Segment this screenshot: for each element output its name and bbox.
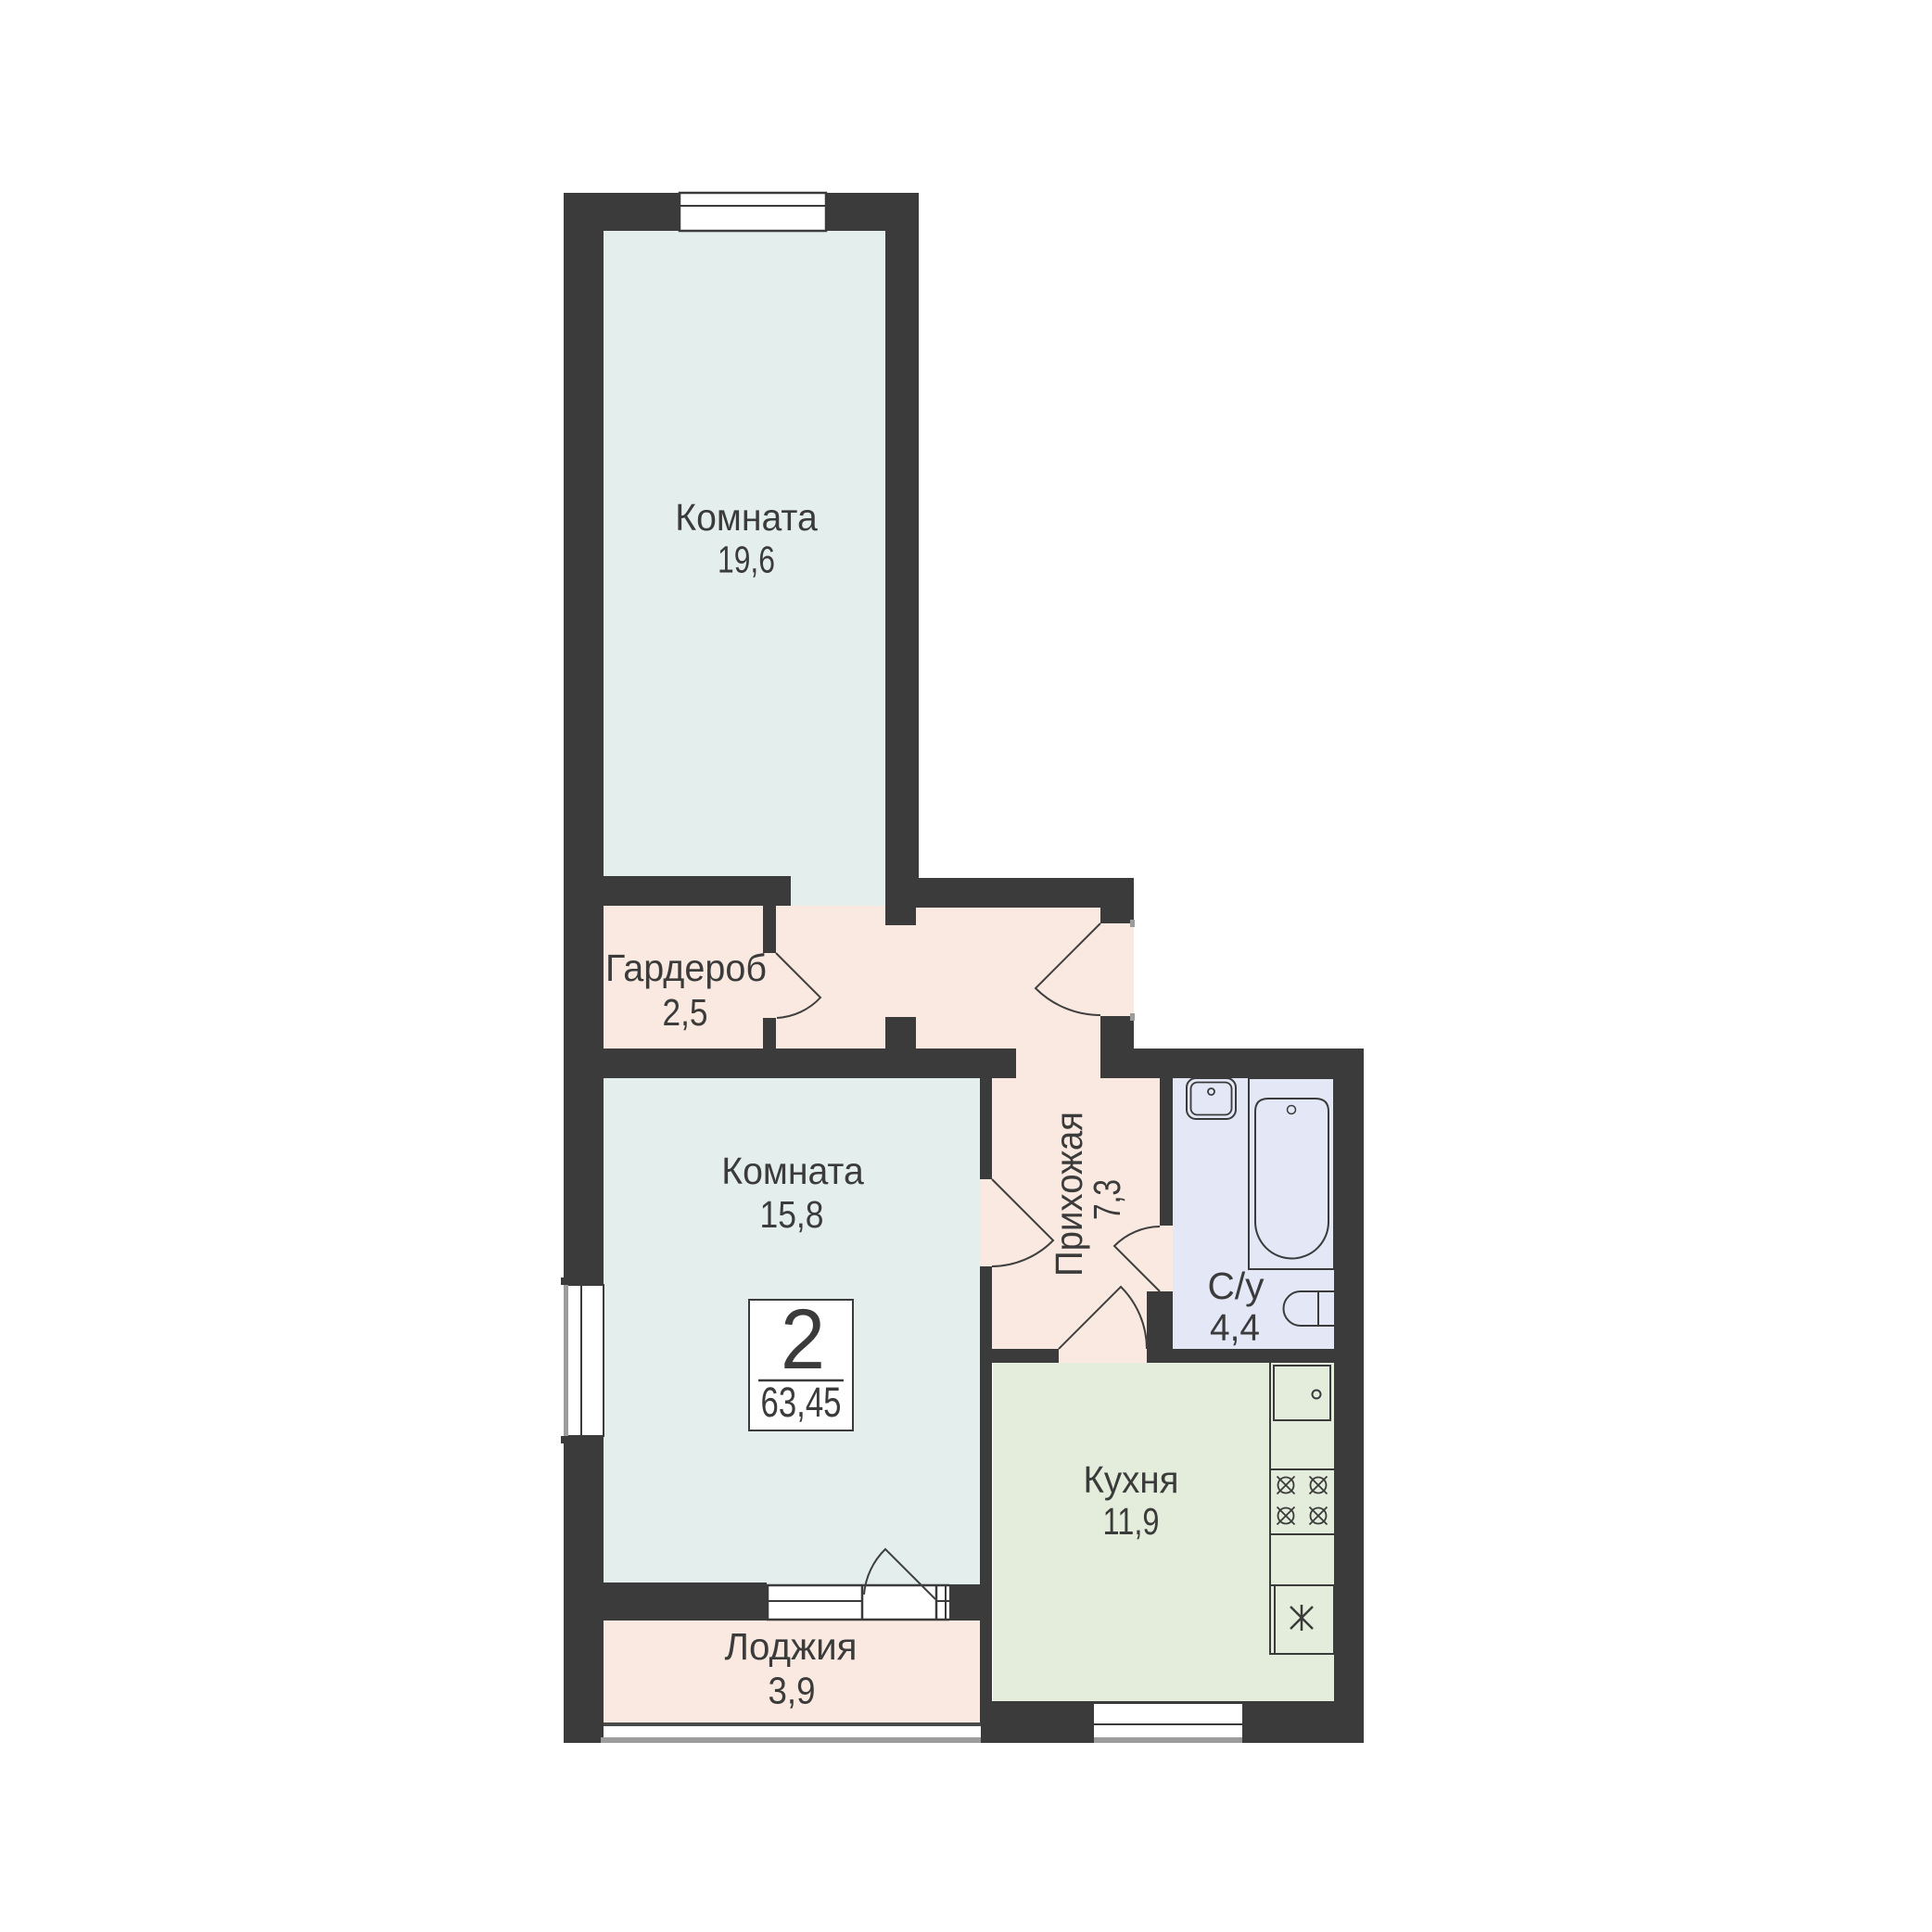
- svg-text:15,8: 15,8: [760, 1193, 824, 1236]
- svg-text:Лоджия: Лоджия: [725, 1625, 858, 1668]
- svg-text:4,4: 4,4: [1210, 1306, 1260, 1349]
- svg-text:Комната: Комната: [721, 1150, 864, 1192]
- svg-text:7,3: 7,3: [1086, 1179, 1128, 1220]
- svg-text:Гардероб: Гардероб: [605, 947, 767, 989]
- svg-text:Прихожая: Прихожая: [1048, 1112, 1090, 1277]
- svg-text:19,6: 19,6: [718, 539, 775, 581]
- svg-text:С/у: С/у: [1208, 1265, 1265, 1307]
- svg-text:63,45: 63,45: [761, 1379, 842, 1426]
- svg-text:2,5: 2,5: [663, 991, 708, 1034]
- svg-text:Кухня: Кухня: [1084, 1458, 1179, 1501]
- svg-text:3,9: 3,9: [769, 1670, 816, 1712]
- svg-text:11,9: 11,9: [1103, 1500, 1160, 1543]
- svg-text:2: 2: [781, 1292, 825, 1387]
- svg-text:Комната: Комната: [675, 496, 818, 539]
